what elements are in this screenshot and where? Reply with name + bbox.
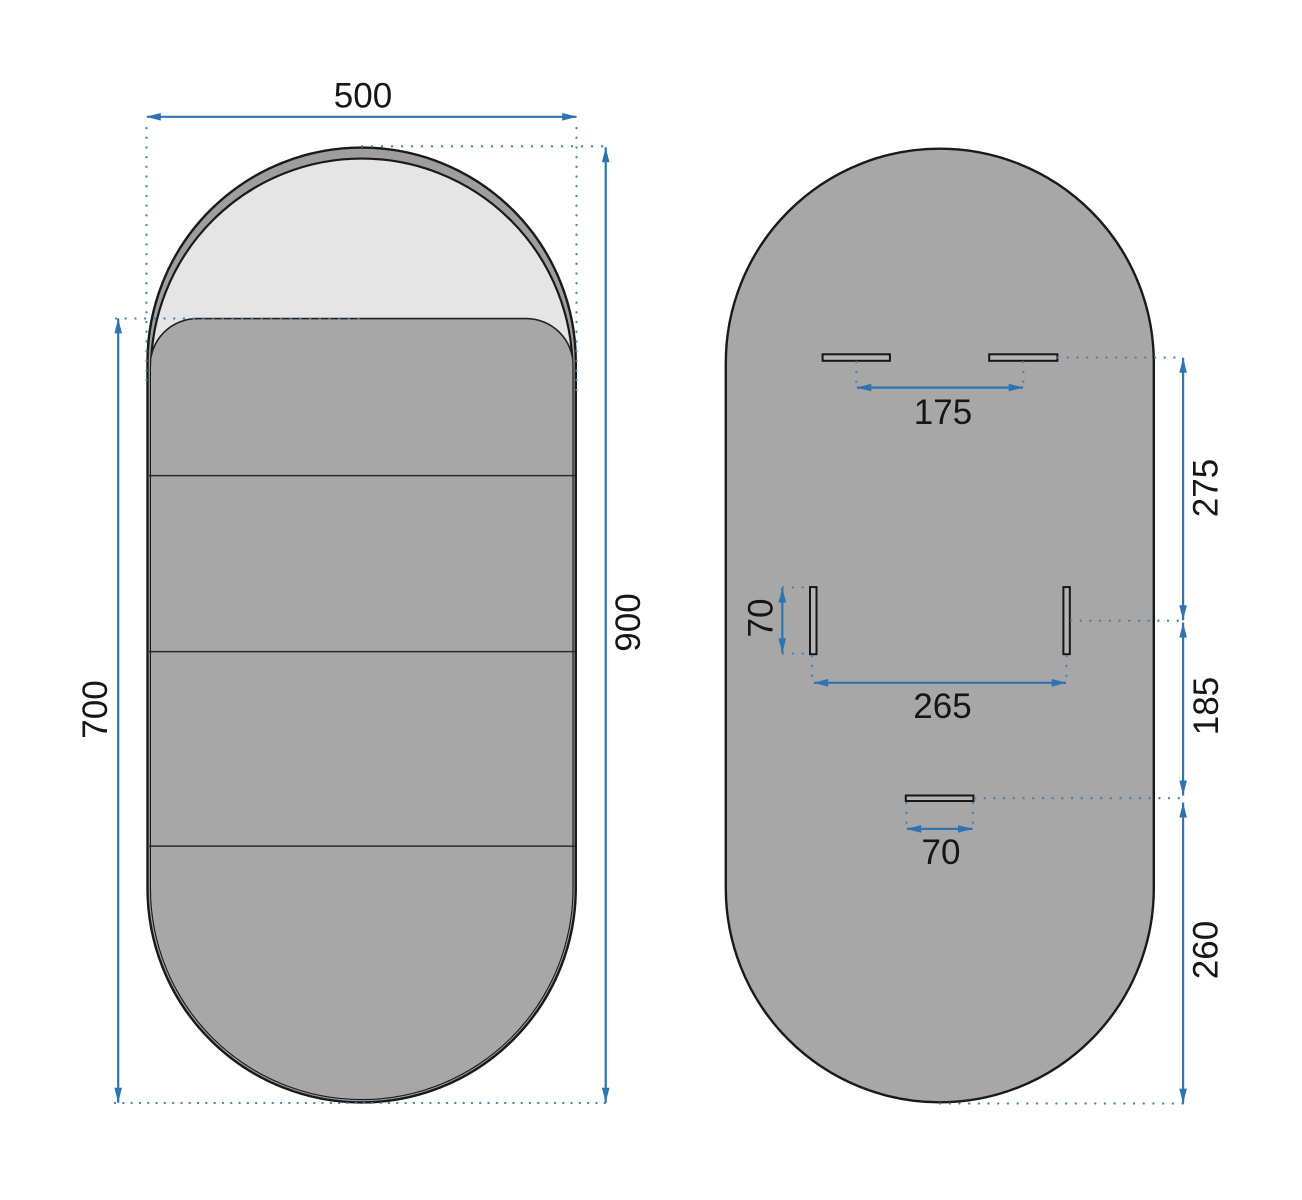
svg-text:70: 70 — [922, 833, 961, 872]
svg-text:175: 175 — [914, 393, 972, 432]
svg-text:900: 900 — [609, 593, 648, 651]
svg-text:700: 700 — [76, 680, 115, 738]
svg-text:260: 260 — [1186, 921, 1225, 979]
svg-text:500: 500 — [334, 77, 392, 116]
svg-text:275: 275 — [1187, 459, 1226, 517]
svg-text:70: 70 — [742, 599, 781, 638]
svg-text:185: 185 — [1187, 677, 1226, 735]
svg-text:265: 265 — [913, 687, 971, 726]
